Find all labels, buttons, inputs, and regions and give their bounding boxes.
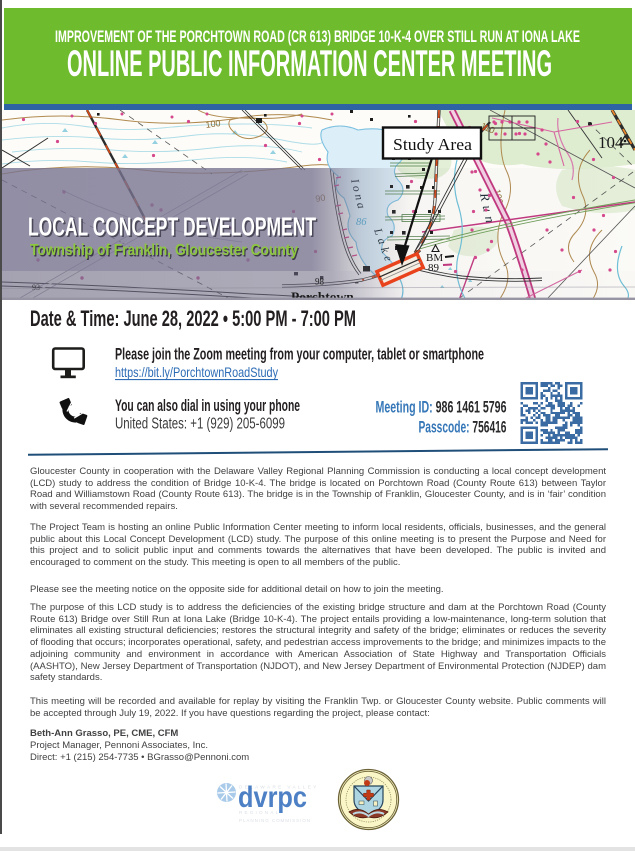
svg-text:104: 104 (598, 133, 624, 152)
svg-text:https://bit.ly/PorchtownRoadSt: https://bit.ly/PorchtownRoadStudy (115, 364, 278, 380)
svg-text:REGIONAL: REGIONAL (239, 810, 280, 815)
svg-text:Meeting ID: 986 1461 5796: Meeting ID: 986 1461 5796 (376, 399, 507, 417)
svg-text:Township of Franklin, Gloucest: Township of Franklin, Gloucester County (30, 242, 298, 259)
svg-text:Date & Time: June 28, 2022 • 5: Date & Time: June 28, 2022 • 5:00 PM - 7… (30, 306, 356, 331)
svg-text:ONLINE PUBLIC INFORMATION CENT: ONLINE PUBLIC INFORMATION CENTER MEETING (67, 43, 552, 84)
svg-text:Study Area: Study Area (393, 135, 472, 154)
svg-text:98: 98 (315, 276, 325, 286)
svg-text:93: 93 (32, 283, 40, 292)
svg-text:You can also dial in using you: You can also dial in using your phone (115, 397, 300, 415)
svg-text:United States: +1 (929) 205-60: United States: +1 (929) 205-6099 (115, 416, 285, 433)
svg-text:100: 100 (205, 117, 221, 129)
svg-text:PLANNING COMMISSION: PLANNING COMMISSION (239, 818, 311, 823)
svg-text:Please join the Zoom meeting f: Please join the Zoom meeting from your c… (115, 346, 484, 364)
svg-text:LOCAL CONCEPT DEVELOPMENT: LOCAL CONCEPT DEVELOPMENT (28, 213, 316, 241)
svg-text:Passcode: 756416: Passcode: 756416 (419, 419, 507, 437)
